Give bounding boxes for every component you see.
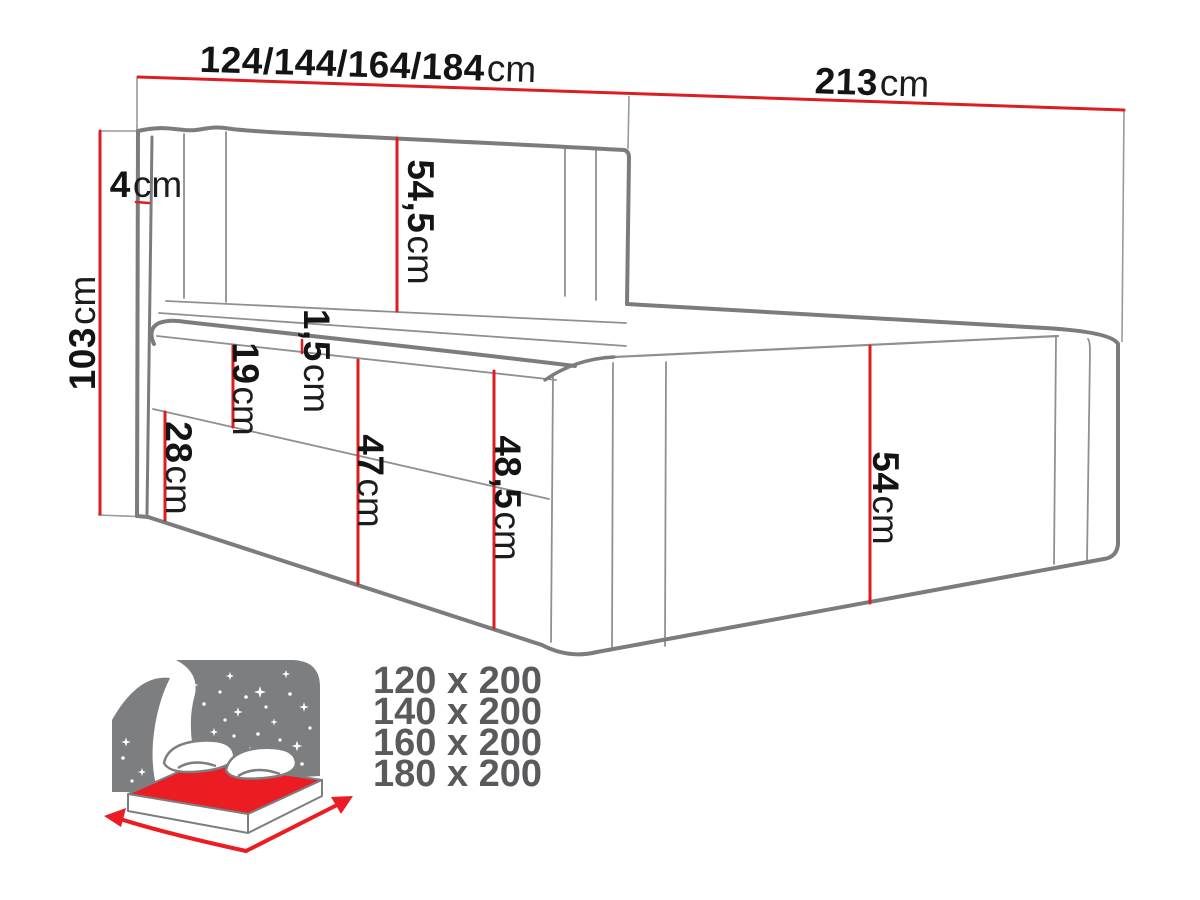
label-headboard-side: 4cm (86, 163, 206, 205)
available-sizes-list: 120 x 200 140 x 200 160 x 200 180 x 200 (373, 666, 542, 790)
label-topper: 1,5cm (296, 281, 338, 441)
size-item: 180 x 200 (373, 759, 542, 790)
label-side-corner: 48,5cm (487, 398, 529, 598)
label-headboard-above: 54,5cm (400, 122, 442, 322)
label-mattress: 19cm (225, 319, 267, 459)
label-foot-end: 54cm (865, 428, 907, 568)
label-side-front: 47cm (350, 411, 392, 551)
bed-dimension-diagram: 124/144/164/184cm 213cm 103cm 4cm 54,5cm… (0, 0, 1200, 900)
bed-size-direction-icon (98, 650, 368, 860)
label-base-front: 28cm (158, 398, 200, 538)
label-height-total: 103cm (61, 233, 103, 433)
bed-outline (137, 127, 1118, 654)
bed-seam-lines (153, 132, 1090, 650)
label-length-total: 213cm (771, 58, 972, 106)
